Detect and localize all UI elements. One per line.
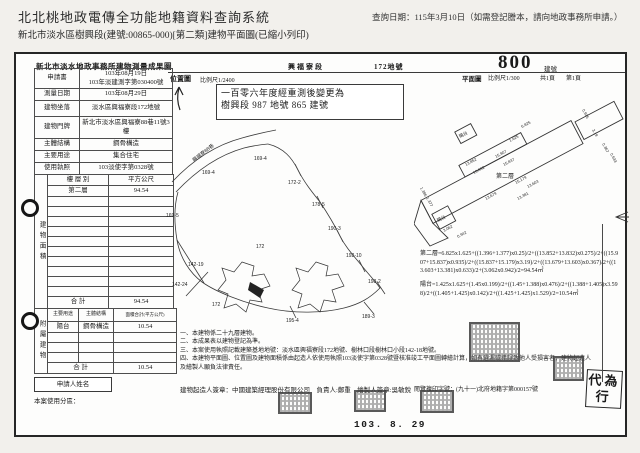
lot-label: 142-24: [172, 282, 188, 288]
info-value: 鋼骨構造: [80, 139, 173, 151]
area-total-label: 合 計: [48, 297, 109, 309]
svg-text:0.633: 0.633: [609, 152, 618, 164]
info-label: 申請書: [35, 69, 80, 89]
page: { "app": { "title": "北北桃地政電傳全功能地籍資料查詢系統"…: [0, 0, 640, 453]
room-label: 第二層: [496, 172, 514, 180]
location-map-scale: 比例尺1/2400: [200, 75, 235, 84]
svg-text:13.679: 13.679: [484, 190, 498, 201]
lot-label: 178-5: [312, 202, 325, 208]
annex-use: 陽台: [48, 322, 79, 333]
seal-stamp: [278, 392, 312, 414]
svg-text:3.062: 3.062: [442, 223, 454, 232]
svg-text:13.603: 13.603: [526, 178, 540, 189]
info-value: 集合住宅: [80, 151, 173, 163]
svg-text:0.367: 0.367: [601, 142, 610, 154]
zoning-label: 本案使用分區：: [34, 395, 80, 405]
lot-label: 169-4: [202, 170, 215, 176]
lot-label: 172-2: [288, 180, 301, 186]
annex-structure: 鋼骨構造: [79, 322, 114, 333]
lot-label: 142-19: [188, 262, 204, 268]
area-side-label: 建物面積: [35, 175, 48, 309]
info-label: 建物門牌: [35, 117, 80, 139]
annex-total-value: 10.54: [114, 363, 177, 374]
lot-label: 190-3: [328, 226, 341, 232]
lot-label: 172: [212, 302, 221, 308]
building-number-handwritten: 800: [498, 52, 533, 74]
lot-label: 195-4: [286, 318, 299, 324]
applicant-name-box: 申請人姓名: [34, 377, 112, 392]
info-value: 淡水區興福寮段172地號: [80, 101, 173, 117]
lot-label: 169-4: [254, 156, 267, 162]
lot-label: 169-5: [166, 213, 179, 219]
apply-date: 103年08月19日: [81, 70, 171, 78]
svg-text:6.825: 6.825: [520, 119, 532, 128]
balcony-label: 陽台: [436, 213, 448, 224]
annex-h2: 主體結構: [79, 309, 114, 322]
proxy-execution-stamp: 代為行: [585, 369, 623, 409]
info-value: 103年08月29日: [80, 89, 173, 101]
floor-plan-scale: 比例尺1/300: [488, 73, 520, 82]
notes-block: 一、本建物係二十九層建物。 二、本成果表以建物登記為準。 三、本案使用執照記載建…: [180, 330, 592, 372]
note-2: 二、本成果表以建物登記為準。: [180, 338, 592, 346]
punch-hole: [21, 312, 39, 330]
section-name: 興福寮段: [288, 62, 324, 72]
svg-text:13.381: 13.381: [516, 190, 530, 201]
note-1: 一、本建物係二十九層建物。: [180, 330, 592, 338]
right-divider: [602, 224, 603, 382]
second-floor-formula: 第二層=6.825x1.625+((1.396+1.377)x0.25)/2+(…: [420, 250, 620, 276]
apply-doc-no: 103年淡建測字第030400號: [81, 79, 171, 87]
pages-total: 共1頁: [540, 73, 555, 82]
date-stamp: 103. 8. 29: [354, 419, 426, 430]
col-floor: 樓 層 別: [48, 175, 109, 186]
lot-label: 172: [256, 244, 265, 250]
header-rule: [168, 72, 625, 73]
annex-total-label: 合 計: [48, 363, 114, 374]
svg-text:15.837: 15.837: [502, 156, 516, 167]
pointer-arrow-icon: [616, 212, 629, 222]
lot-label: 192-10: [346, 253, 362, 259]
lot-label: 189-3: [362, 314, 375, 320]
floor-plan-label: 平面圖: [462, 73, 482, 83]
info-label: 建物坐落: [35, 101, 80, 117]
info-value: 103年08月19日 103年淡建測字第030400號: [80, 69, 173, 89]
balcony-label: 陽台: [458, 129, 470, 140]
map-linework: [172, 130, 385, 318]
area-calculations: 第二層=6.825x1.625+((1.396+1.377)x0.25)/2+(…: [420, 250, 620, 303]
svg-text:0.942: 0.942: [456, 229, 468, 238]
lot-number-header: 172地號: [374, 62, 404, 72]
info-value: 103淡使字第0328號: [80, 163, 173, 175]
location-map: 興福寮88巷 169-4 169-4 172-2 178-5 190-3 169…: [164, 90, 404, 340]
info-value: 新北市淡水區興福寮88巷11號3樓: [80, 117, 173, 139]
query-date: 查詢日期：115年3月10日（如需登記謄本，請向地政事務所申請。）: [372, 11, 622, 23]
location-map-label: 位置圖: [170, 74, 191, 84]
note-3: 三、本案使用執照記載建築基地地號：淡水區興福寮段172地號、樹林口段樹林口小段1…: [180, 347, 592, 355]
info-label: 測量日期: [35, 89, 80, 101]
seal-stamp: [420, 390, 454, 413]
annex-h1: 主要用途: [48, 309, 79, 322]
document-subtitle: 新北市淡水區樹興段(建號:00865-000)[第二類]建物平面圖(已縮小列印): [18, 27, 309, 41]
floor-area-table: 建物面積 樓 層 別 平方公尺 第二層94.54 合 計94.54: [34, 174, 174, 309]
page-current: 第1頁: [566, 73, 581, 82]
seal-stamp-small: [553, 356, 584, 381]
floor-name: 第二層: [48, 186, 109, 197]
svg-text:13.832: 13.832: [472, 164, 486, 175]
annex-table: 附屬建物 主要用途 主體結構 面積合計(平方公尺) 陽台 鋼骨構造 10.54 …: [34, 308, 177, 374]
svg-text:1.396: 1.396: [419, 186, 428, 198]
balcony-formula: 陽台=1.425x1.625+(1.45x0.199)/2+((1.45+1.3…: [420, 281, 620, 298]
svg-text:1.377: 1.377: [425, 196, 434, 208]
svg-text:3.19: 3.19: [591, 128, 599, 138]
survey-document: 新北市淡水地政事務所建物測量成果圖 興福寮段 172地號 800 建號 位置圖 …: [14, 52, 627, 437]
info-label: 主體結構: [35, 139, 80, 151]
info-label: 使用執照: [35, 163, 80, 175]
floor-plan-drawing: 第二層 陽台 陽台 6.825 1.625 13.852 13.832 15.9…: [414, 98, 629, 248]
office-seal-large: [469, 322, 520, 362]
subject-unit-hatched: [248, 282, 264, 298]
building-cluster-right: [292, 262, 344, 312]
dimension-labels: 6.825 1.625 13.852 13.832 15.907 15.837 …: [419, 108, 618, 239]
system-title: 北北桃地政電傳全功能地籍資料查詢系統: [18, 7, 270, 26]
svg-text:13.852: 13.852: [464, 156, 478, 167]
note-4: 四、本建物平面圖、位置圖及建物面積係由起造人依使用執照103淡使字第0328號暨…: [180, 355, 592, 372]
building-info-table: 申請書 103年08月19日 103年淡建測字第030400號 測量日期103年…: [34, 68, 173, 175]
seal-stamp: [354, 390, 386, 412]
svg-text:15.179: 15.179: [514, 174, 528, 185]
building-cluster-left: [218, 262, 270, 312]
punch-hole: [21, 199, 39, 217]
svg-text:1.625: 1.625: [508, 133, 520, 142]
info-label: 主要用途: [35, 151, 80, 163]
road-name-label: 興福寮88巷: [191, 142, 215, 163]
lot-label: 198-2: [368, 279, 381, 285]
